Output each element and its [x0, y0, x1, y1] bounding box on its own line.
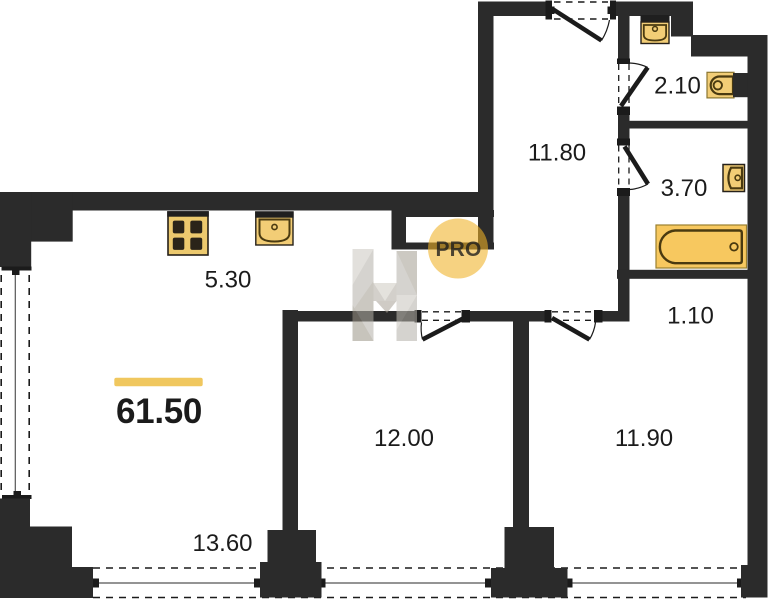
- svg-text:13.60: 13.60: [192, 530, 252, 557]
- svg-text:2.10: 2.10: [654, 73, 701, 100]
- svg-text:PRO: PRO: [435, 238, 481, 261]
- svg-text:11.80: 11.80: [528, 140, 586, 167]
- svg-text:11.90: 11.90: [615, 425, 673, 452]
- svg-text:5.30: 5.30: [205, 267, 252, 294]
- svg-text:1.10: 1.10: [667, 303, 714, 330]
- svg-text:61.50: 61.50: [116, 392, 202, 431]
- svg-text:12.00: 12.00: [374, 425, 434, 452]
- svg-text:3.70: 3.70: [661, 175, 708, 202]
